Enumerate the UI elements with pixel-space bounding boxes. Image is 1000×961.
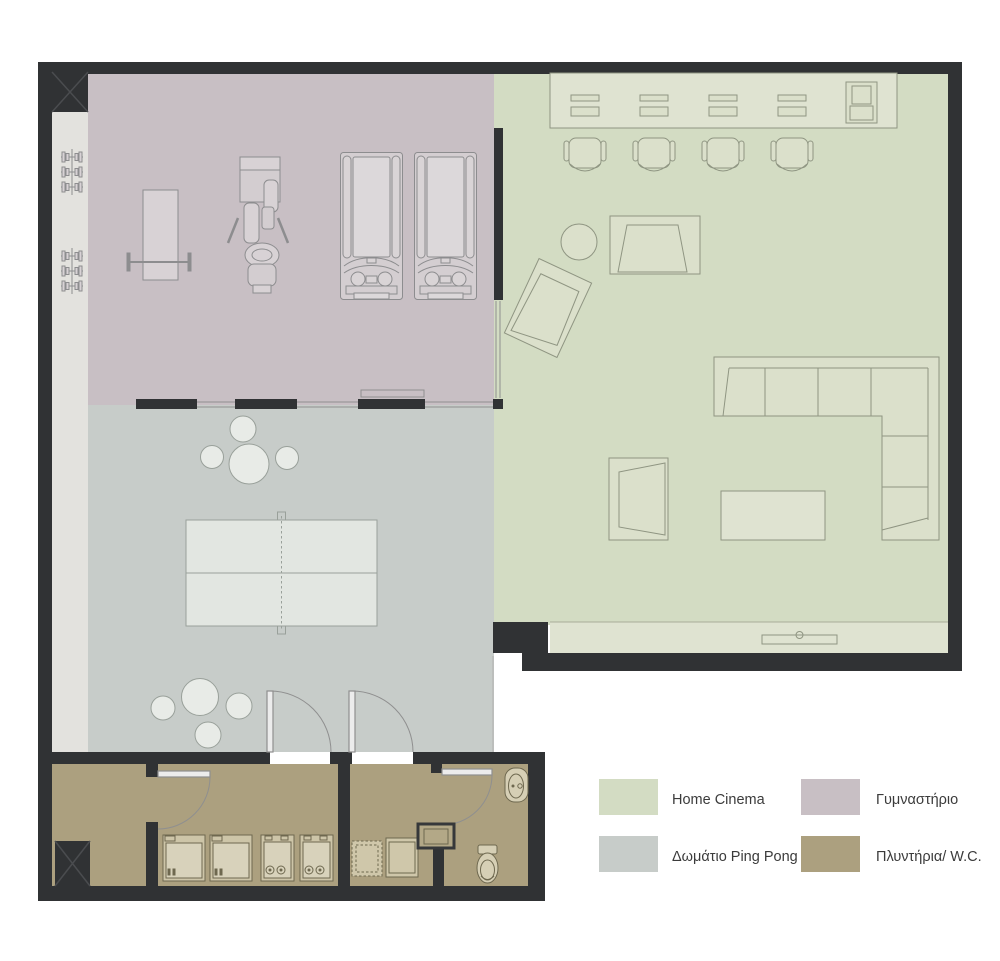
wall-wc-right — [528, 752, 545, 901]
wall-vestibule-stub-top — [146, 764, 158, 777]
treadmill-icon — [341, 153, 403, 300]
wall-wc-stub-bottom — [433, 848, 444, 886]
armchair-icon — [609, 458, 668, 540]
wall-mirror-icon — [418, 824, 454, 848]
legend-swatch-home-cinema — [599, 779, 658, 815]
legend-label-gym: Γυμναστήριο — [876, 792, 958, 808]
dryer-icon — [261, 835, 294, 881]
legend-item-laundry-wc: Πλυντήρια/ W.C. — [801, 836, 982, 872]
floor-plan-canvas: Home Cinema Γυμναστήριο Δωμάτιο Ping Pon… — [0, 0, 1000, 961]
cinema-window-sill — [550, 622, 948, 654]
legend-item-home-cinema: Home Cinema — [599, 779, 766, 815]
wall-gym-corner-post — [493, 399, 503, 409]
legend-label-home-cinema: Home Cinema — [672, 792, 766, 808]
wall-top — [38, 62, 962, 74]
cabinet-icon — [386, 838, 418, 877]
sink-icon — [505, 768, 528, 802]
laundry-basket-icon — [352, 841, 382, 876]
legend-label-ping-pong: Δωμάτιο Ping Pong — [672, 849, 798, 865]
dumbbell-rack-icon — [61, 248, 83, 294]
wall-gym-cinema — [494, 128, 503, 300]
armchair-icon — [610, 216, 700, 274]
dumbbell-rack-icon — [61, 149, 83, 195]
wall-vestibule-partition — [146, 822, 158, 886]
wall-gym-seg2 — [235, 399, 297, 409]
wall-bottom — [38, 886, 545, 901]
wall-gym-seg3 — [358, 399, 425, 409]
legend-label-laundry-wc: Πλυντήρια/ W.C. — [876, 849, 982, 865]
ping-pong-table-icon — [186, 512, 377, 634]
treadmill-icon — [415, 153, 477, 300]
toilet-icon — [477, 845, 498, 883]
legend: Home Cinema Γυμναστήριο Δωμάτιο Ping Pon… — [599, 779, 982, 872]
gym-side-ledge — [52, 112, 88, 752]
wall-wc-top — [413, 752, 528, 764]
wall-laundry-wc-divider — [338, 764, 350, 886]
side-table-icon — [561, 224, 597, 260]
wall-laundry-top-2 — [330, 752, 352, 764]
wall-laundry-top-1 — [52, 752, 270, 764]
wall-wc-stub-top — [431, 764, 442, 773]
washing-machine-icon — [163, 835, 205, 881]
wall-left — [38, 62, 52, 901]
coffee-table-icon — [721, 491, 825, 540]
wall-cinema-bottom-block — [493, 622, 548, 653]
legend-swatch-gym — [801, 779, 860, 815]
floor-plan: Home Cinema Γυμναστήριο Δωμάτιο Ping Pon… — [0, 0, 1000, 961]
dryer-icon — [300, 835, 333, 881]
wall-right — [948, 62, 962, 671]
legend-item-ping-pong: Δωμάτιο Ping Pong — [599, 836, 798, 872]
legend-swatch-laundry-wc — [801, 836, 860, 872]
legend-swatch-ping-pong — [599, 836, 658, 872]
washing-machine-icon — [210, 835, 252, 881]
legend-item-gym: Γυμναστήριο — [801, 779, 958, 815]
wall-cinema-bottom — [522, 653, 962, 671]
printer-icon — [846, 82, 877, 123]
wall-gym-seg1 — [136, 399, 197, 409]
